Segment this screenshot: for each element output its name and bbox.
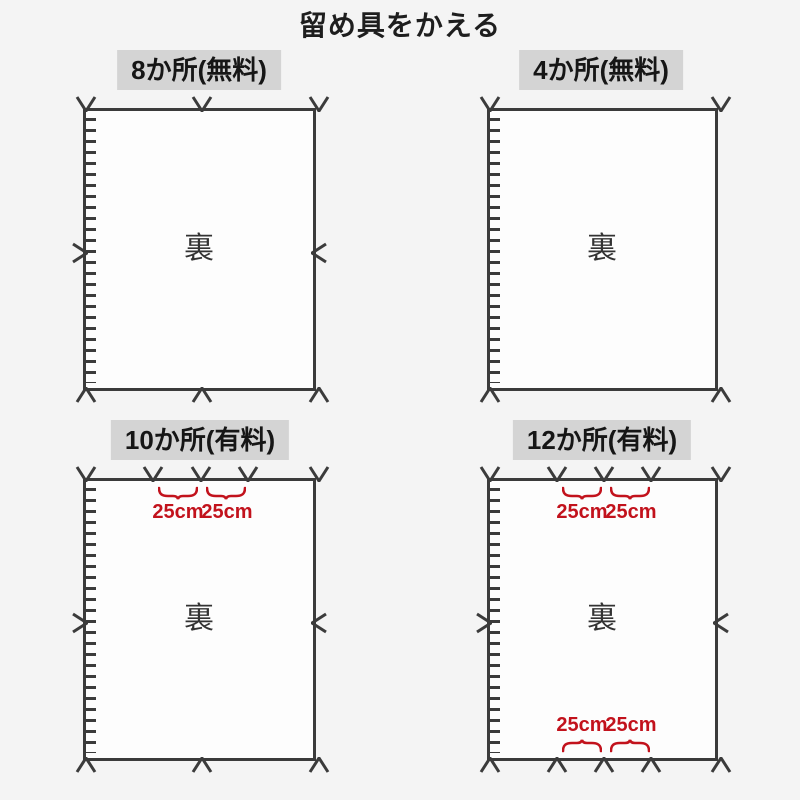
fastener-chevron-bottom-center-icon	[191, 757, 213, 773]
measure-brace-icon	[562, 486, 602, 500]
measure-brace-icon	[610, 486, 650, 500]
fastener-chevron-middle-right-icon	[311, 612, 327, 634]
fastener-chevron-middle-left-icon	[476, 612, 492, 634]
panel-8-header: 8か所(無料)	[117, 50, 281, 90]
fastener-chevron-bottom-center-icon	[593, 757, 615, 773]
fastener-chevron-bottom-left-icon	[479, 757, 501, 773]
fastener-chevron-top-mid1-icon	[142, 466, 164, 482]
fastener-chevron-top-center-icon	[593, 466, 615, 482]
measure-brace-icon	[610, 739, 650, 753]
fastener-chevron-top-center-icon	[191, 96, 213, 112]
back-side-label: 裏	[184, 593, 215, 637]
fastener-chevron-top-mid2-icon	[237, 466, 259, 482]
measurement-label: 25cm	[605, 501, 656, 524]
panel-4-sheet: 裏	[487, 108, 718, 391]
fastener-chevron-bottom-mid2-icon	[640, 757, 662, 773]
fastener-chevron-middle-left-icon	[72, 612, 88, 634]
panel-8-sheet: 裏	[83, 108, 316, 391]
fastener-chevron-top-center-icon	[190, 466, 212, 482]
panel-4-header: 4か所(無料)	[519, 50, 683, 90]
fastener-chevron-bottom-center-icon	[191, 387, 213, 403]
fastener-chevron-top-mid2-icon	[640, 466, 662, 482]
fastener-chevron-top-left-icon	[75, 466, 97, 482]
fastener-chevron-bottom-right-icon	[710, 757, 732, 773]
back-side-label: 裏	[587, 593, 618, 637]
fastener-chevron-bottom-left-icon	[75, 757, 97, 773]
back-side-label: 裏	[184, 223, 215, 267]
panel-10-sheet: 裏 25cm 25cm	[83, 478, 316, 761]
fastener-tape-ticks-icon	[490, 118, 500, 383]
measurement-label: 25cm	[556, 714, 607, 737]
fastener-chevron-middle-right-icon	[311, 242, 327, 264]
panel-12-header: 12か所(有料)	[513, 420, 691, 460]
fastener-chevron-bottom-right-icon	[710, 387, 732, 403]
fastener-chevron-top-right-icon	[308, 96, 330, 112]
fastener-chevron-top-right-icon	[710, 96, 732, 112]
fastener-chevron-bottom-left-icon	[479, 387, 501, 403]
measurement-label: 25cm	[201, 501, 252, 524]
measure-brace-icon	[206, 486, 246, 500]
back-side-label: 裏	[587, 223, 618, 267]
measurement-label: 25cm	[556, 501, 607, 524]
fastener-chevron-bottom-left-icon	[75, 387, 97, 403]
fastener-chevron-middle-left-icon	[72, 242, 88, 264]
measure-brace-icon	[158, 486, 198, 500]
fastener-chevron-bottom-right-icon	[308, 757, 330, 773]
fastener-chevron-middle-right-icon	[713, 612, 729, 634]
fastener-chevron-top-mid1-icon	[546, 466, 568, 482]
fastener-chevron-top-right-icon	[308, 466, 330, 482]
panel-10-header: 10か所(有料)	[111, 420, 289, 460]
fastener-chevron-bottom-mid1-icon	[546, 757, 568, 773]
panel-12-sheet: 裏 25cm 25cm 25cm 25cm	[487, 478, 718, 761]
fastener-chevron-top-left-icon	[75, 96, 97, 112]
fastener-chevron-top-right-icon	[710, 466, 732, 482]
fastener-chevron-bottom-right-icon	[308, 387, 330, 403]
measurement-label: 25cm	[152, 501, 203, 524]
fastener-chevron-top-left-icon	[479, 96, 501, 112]
fastener-chevron-top-left-icon	[479, 466, 501, 482]
measure-brace-icon	[562, 739, 602, 753]
page-title: 留め具をかえる	[0, 4, 800, 44]
measurement-label: 25cm	[605, 714, 656, 737]
